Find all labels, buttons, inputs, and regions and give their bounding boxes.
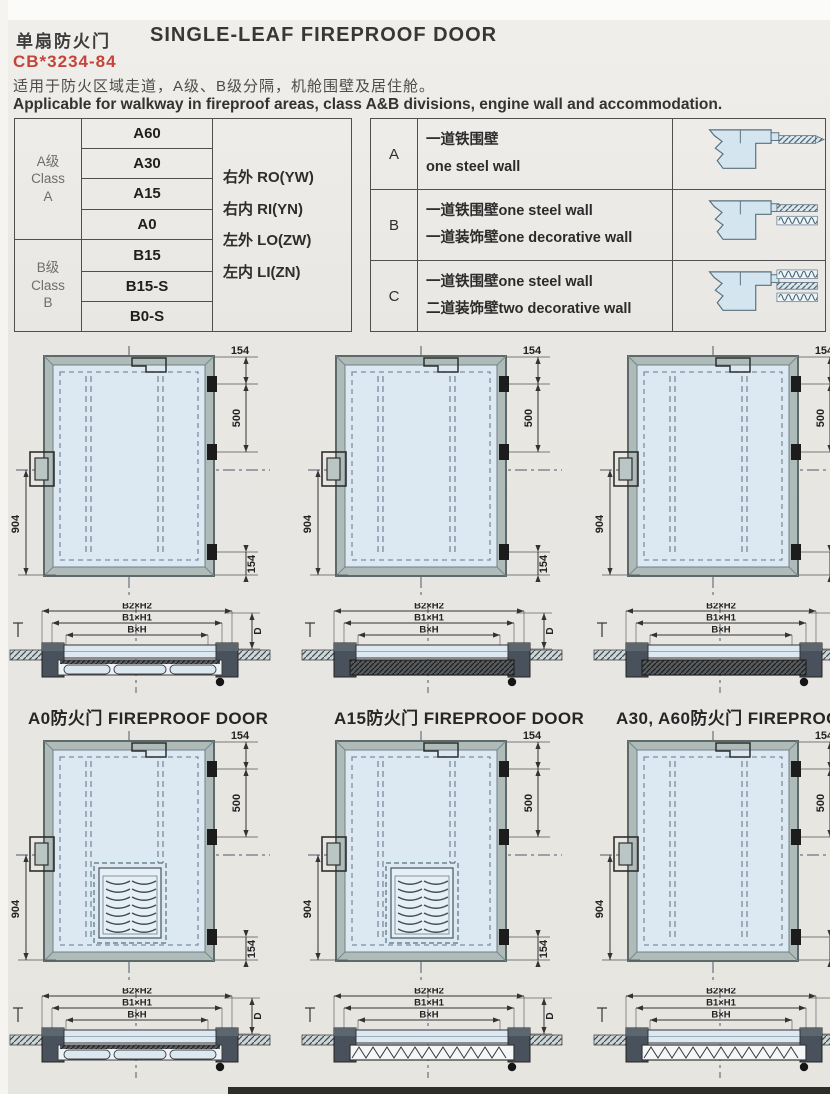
section-dim-label: B×H [127,1010,146,1021]
section-dim-label: B2×H2 [122,603,152,612]
class-a-line: Class [19,170,77,188]
door-cross-section: B2×H2 B1×H1 B×H D [586,988,830,1082]
wall-desc-line: 一道铁围壁one steel wall [426,269,668,296]
dim-label: 904 [10,899,22,918]
door-elevation: 154 500 154 904 [294,346,570,598]
hinge [791,929,801,945]
section-knob [508,1063,516,1071]
description-en: Applicable for walkway in fireproof area… [13,96,722,114]
wall-config-table: A 一道铁围壁 one steel wall B 一道铁围壁one steel … [370,118,826,332]
dim-label: 500 [523,794,535,812]
hinge [791,444,801,460]
wall-stub [530,1035,562,1045]
dim-label: 904 [594,514,606,533]
section-knob [800,678,808,686]
section-dim-label: B2×H2 [414,603,444,612]
section-dim-label: B2×H2 [414,988,444,997]
rating-cell: A15 [82,179,213,209]
door-panel: 154 500 154 904 B2×H2 B1×H1 B×H D B15级防火… [586,731,830,1094]
table-row: A级 Class A A60 右外 RO(YW) 右内 RI(YN) 左外 LO… [15,119,352,149]
wall-section-diagram [673,261,826,332]
dim-label: 154 [231,346,250,357]
hinge [499,829,509,845]
orientation-line: 左内 LI(ZN) [223,257,347,289]
dim-label: 500 [815,794,827,812]
class-a-label: A级 Class A [15,119,82,240]
dim-label: 500 [523,409,535,427]
hinge [207,376,217,392]
wall-desc-line: 一道铁围壁 [426,127,668,154]
door-leaf [345,365,497,567]
class-b-label: B级 Class B [15,239,82,331]
section-dim-label: B1×H1 [122,998,153,1009]
hinge [791,376,801,392]
door-leaf [53,365,205,567]
section-knob [216,1063,224,1071]
orientation-line: 右外 RO(YW) [223,162,347,194]
hinge [499,544,509,560]
panel-caption: A15防火门 FIREPROOF DOOR [294,704,570,729]
door-leaf [637,750,789,952]
hinge [499,376,509,392]
door-cross-section: B2×H2 B1×H1 B×H D [294,988,570,1082]
wall-desc-line: one steel wall [426,154,668,181]
door-elevation: 154 500 154 904 [2,731,278,983]
class-b-line: B级 [19,259,77,277]
section-dim-label: B×H [419,625,438,636]
wall-type-desc: 一道铁围壁one steel wall 二道装饰壁two decorative … [418,261,673,332]
hinge [499,761,509,777]
wall-stub [10,650,42,660]
hinge [207,929,217,945]
dim-label: 500 [231,794,243,812]
scan-bottom-shadow [228,1087,830,1094]
table-row: A 一道铁围壁 one steel wall [371,119,826,190]
dim-label: 154 [523,346,542,357]
class-a-line: A级 [19,153,77,171]
wall-type-letter: B [371,190,418,261]
wall-desc-line: 一道铁围壁one steel wall [426,198,668,225]
wall-stub [530,650,562,660]
section-dim-label: B×H [711,1010,730,1021]
wall-stub [10,1035,42,1045]
table-row: B 一道铁围壁one steel wall 一道装饰壁one decorativ… [371,190,826,261]
section-dim-label: B1×H1 [122,613,153,624]
door-leaf [637,365,789,567]
dim-label: 154 [538,554,550,573]
wall-type-letter: A [371,119,418,190]
wall-type-diagram [673,120,825,184]
wall-type-letter: C [371,261,418,332]
door-panel: 154 500 154 904 B2×H2 B1×H1 B×H D A30, A… [586,346,830,718]
section-dim-label: B1×H1 [414,613,445,624]
dim-label: 154 [246,554,258,573]
class-a-line: A [19,188,77,206]
dim-label: 500 [815,409,827,427]
wall-section-diagram [673,190,826,261]
door-cross-section: B2×H2 B1×H1 B×H D [2,988,278,1082]
dim-label: 904 [302,514,314,533]
dim-label: 500 [231,409,243,427]
section-dim-label: B1×H1 [414,998,445,1009]
section-knob [800,1063,808,1071]
door-elevation: 154 500 154 904 [294,731,570,983]
dim-label: 154 [538,939,550,958]
door-cross-section: B2×H2 B1×H1 B×H D [294,603,570,697]
dim-label: 154 [523,731,542,742]
section-dim-label: D [545,1012,556,1019]
door-panel: 154 500 154 904 B2×H2 B1 [2,731,278,1094]
section-dim-label: B2×H2 [706,603,736,612]
dim-label: 154 [815,731,830,742]
rating-cell: B15-S [82,271,213,301]
door-cross-section: B2×H2 B1×H1 B×H D [586,603,830,697]
door-panel: 154 500 154 904 B2×H2 B1 [294,731,570,1094]
class-b-line: B [19,294,77,312]
wall-stub [238,1035,270,1045]
section-dim-label: B×H [127,625,146,636]
door-elevation: 154 500 154 904 [586,731,830,983]
section-dim-label: B1×H1 [706,613,737,624]
scan-top-margin [0,0,830,20]
hinge [207,544,217,560]
door-panel: 154 500 154 904 B2×H2 B1×H1 B×H D A15防火门… [294,346,570,718]
hinge [791,829,801,845]
wall-type-desc: 一道铁围壁one steel wall 一道装饰壁one decorative … [418,190,673,261]
description-cn: 适用于防火区域走道，A级、B级分隔，机舱围壁及居住舱。 [13,75,435,96]
section-knob [216,678,224,686]
orientation-line: 右内 RI(YN) [223,194,347,226]
class-rating-table: A级 Class A A60 右外 RO(YW) 右内 RI(YN) 左外 LO… [14,118,352,332]
wall-type-diagram [673,191,825,255]
wall-section-diagram [673,119,826,190]
wall-stub [594,1035,626,1045]
section-dim-label: B×H [419,1010,438,1021]
rating-cell: B15 [82,239,213,271]
louver-vent [386,863,458,943]
dim-label: 154 [231,731,250,742]
section-dim-label: B×H [711,625,730,636]
orientation-cell: 右外 RO(YW) 右内 RI(YN) 左外 LO(ZW) 左内 LI(ZN) [213,119,352,332]
hinge [207,829,217,845]
page-title-cn: 单扇防火门 [16,27,111,52]
page-title-en: SINGLE-LEAF FIREPROOF DOOR [150,24,497,47]
wall-stub [594,650,626,660]
dim-label: 904 [10,514,22,533]
hinge [499,444,509,460]
wall-stub [822,650,830,660]
standard-code: CB*3234-84 [13,52,117,72]
dim-label: 154 [815,346,830,357]
section-dim-label: B1×H1 [706,998,737,1009]
wall-stub [238,650,270,660]
hinge [207,444,217,460]
door-cross-section: B2×H2 B1×H1 B×H D [2,603,278,697]
door-elevation: 154 500 154 904 [2,346,278,598]
panel-caption: A30, A60防火门 FIREPROOF DOOR [586,704,830,729]
wall-type-diagram [673,262,825,326]
section-knob [508,678,516,686]
section-dim-label: B2×H2 [706,988,736,997]
panel-caption: A0防火门 FIREPROOF DOOR [2,704,278,729]
class-b-line: Class [19,277,77,295]
wall-stub [822,1035,830,1045]
hinge [791,761,801,777]
louver-vent [94,863,166,943]
rating-cell: A30 [82,149,213,179]
wall-stub [302,1035,334,1045]
hinge [499,929,509,945]
dim-label: 154 [246,939,258,958]
section-dim-label: D [253,627,264,634]
section-dim-label: D [253,1012,264,1019]
hinge [791,544,801,560]
dim-label: 904 [302,899,314,918]
wall-desc-line: 二道装饰壁two decorative wall [426,296,668,323]
section-dim-label: B2×H2 [122,988,152,997]
wall-desc-line: 一道装饰壁one decorative wall [426,225,668,252]
orientation-line: 左外 LO(ZW) [223,225,347,257]
door-elevation: 154 500 154 904 [586,346,830,598]
table-row: C 一道铁围壁one steel wall 二道装饰壁two decorativ… [371,261,826,332]
rating-cell: B0-S [82,301,213,331]
rating-cell: A60 [82,119,213,149]
wall-stub [302,650,334,660]
hinge [207,761,217,777]
wall-type-desc: 一道铁围壁 one steel wall [418,119,673,190]
rating-cell: A0 [82,209,213,239]
catalog-page: 单扇防火门 SINGLE-LEAF FIREPROOF DOOR CB*3234… [0,0,830,1094]
section-dim-label: D [545,627,556,634]
door-panel: 154 500 154 904 B2×H2 B1×H1 B×H D A0防火门 … [2,346,278,718]
dim-label: 904 [594,899,606,918]
